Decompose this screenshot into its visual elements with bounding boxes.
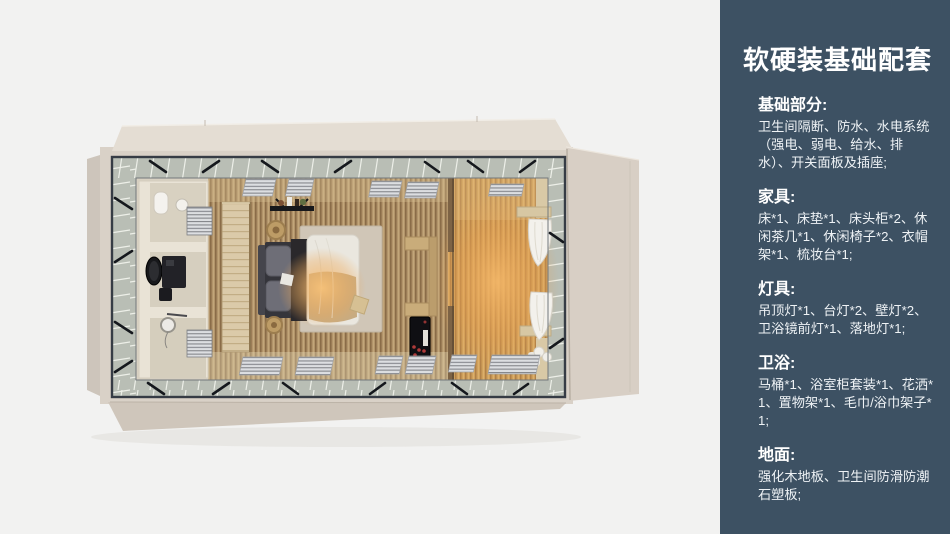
- bedside-lamp-glow: [278, 248, 366, 328]
- towel-rack: [187, 330, 212, 357]
- louver-blind: [295, 357, 334, 375]
- bathroom: [139, 181, 212, 378]
- bed: [258, 235, 369, 328]
- woven-pouf-center: [273, 227, 280, 234]
- side-panel-right: [566, 147, 639, 401]
- section-lighting: 灯具: 吊顶灯*1、台灯*2、壁灯*2、卫浴镜前灯*1、落地灯*1;: [758, 280, 936, 338]
- roof-flap-top: [112, 119, 573, 151]
- ground-shadow: [91, 427, 581, 447]
- section-lighting-body: 吊顶灯*1、台灯*2、壁灯*2、卫浴镜前灯*1、落地灯*1;: [758, 302, 936, 338]
- partition-track: [452, 178, 454, 380]
- section-lighting-heading: 灯具:: [758, 280, 936, 300]
- wardrobe-body: [222, 202, 250, 352]
- louver-blind: [285, 179, 314, 196]
- shower-head-icon: [176, 199, 188, 211]
- vanity-stool: [159, 288, 172, 301]
- section-flooring-body: 强化木地板、卫生间防滑防潮石塑板;: [758, 468, 936, 504]
- louver-blind: [375, 356, 403, 374]
- pot-icon: [278, 200, 284, 206]
- shelf-board: [270, 206, 314, 211]
- section-bathroom-body: 马桶*1、浴室柜套装*1、花洒*1、置物架*1、毛巾/浴巾架子*1;: [758, 376, 936, 430]
- wardrobe: [222, 202, 250, 352]
- louver-blind: [448, 355, 477, 372]
- section-furniture-body: 床*1、床垫*1、床头柜*2、休闲茶几*1、休闲椅子*2、衣帽架*1、梳妆台*1…: [758, 210, 936, 264]
- louver-blind: [369, 181, 402, 197]
- bottle-icon: [287, 197, 292, 206]
- window-sill: [517, 207, 551, 217]
- vanity-mirror-glass: [149, 261, 159, 281]
- floorplan-render: [0, 0, 720, 534]
- railing-ticks: [112, 157, 565, 178]
- bottle-cap: [417, 348, 421, 352]
- minibar-cabinet: [410, 317, 430, 362]
- section-bathroom: 卫浴: 马桶*1、浴室柜套装*1、花洒*1、置物架*1、毛巾/浴巾架子*1;: [758, 354, 936, 430]
- section-basics: 基础部分: 卫生间隔断、防水、水电系统（强电、弱电、给水、排水）、开关面板及插座…: [758, 96, 936, 172]
- section-flooring: 地面: 强化木地板、卫生间防滑防潮石塑板;: [758, 446, 936, 504]
- section-basics-body: 卫生间隔断、防水、水电系统（强电、弱电、给水、排水）、开关面板及插座;: [758, 118, 936, 172]
- minibar-label: [423, 330, 428, 346]
- vanity-sink: [166, 260, 174, 266]
- rolled-towel: [543, 353, 552, 362]
- louver-blind: [405, 356, 436, 374]
- toilet: [154, 192, 168, 214]
- bottle-cap: [422, 349, 426, 353]
- section-basics-heading: 基础部分:: [758, 96, 936, 116]
- louver-blind: [488, 355, 540, 374]
- towel-rack: [187, 207, 212, 235]
- louver-blind: [239, 357, 283, 375]
- floor-drain: [161, 318, 175, 332]
- plant-icon: [300, 199, 306, 205]
- shelf-post: [429, 237, 437, 316]
- louver-blind: [405, 182, 439, 198]
- floorplan-svg: [0, 0, 720, 534]
- louver-blind: [242, 179, 276, 196]
- roof-flap-bottom: [108, 402, 566, 431]
- section-flooring-heading: 地面:: [758, 446, 936, 466]
- sidebar: 软硬装基础配套 基础部分: 卫生间隔断、防水、水电系统（强电、弱电、给水、排水）…: [720, 0, 950, 534]
- slide-canvas: 软硬装基础配套 基础部分: 卫生间隔断、防水、水电系统（强电、弱电、给水、排水）…: [0, 0, 950, 534]
- woven-pouf-center: [271, 322, 277, 328]
- side-panel-left: [87, 155, 100, 396]
- section-furniture-heading: 家具:: [758, 188, 936, 208]
- page-title: 软硬装基础配套: [743, 44, 938, 76]
- railing-ticks: [112, 380, 565, 397]
- bottle-cap: [412, 345, 416, 349]
- headboard: [258, 245, 266, 315]
- bottle-icon: [295, 199, 299, 206]
- bottle-cap: [424, 321, 427, 324]
- section-furniture: 家具: 床*1、床垫*1、床头柜*2、休闲茶几*1、休闲椅子*2、衣帽架*1、梳…: [758, 188, 936, 264]
- section-bathroom-heading: 卫浴:: [758, 354, 936, 374]
- louver-blind: [488, 184, 524, 196]
